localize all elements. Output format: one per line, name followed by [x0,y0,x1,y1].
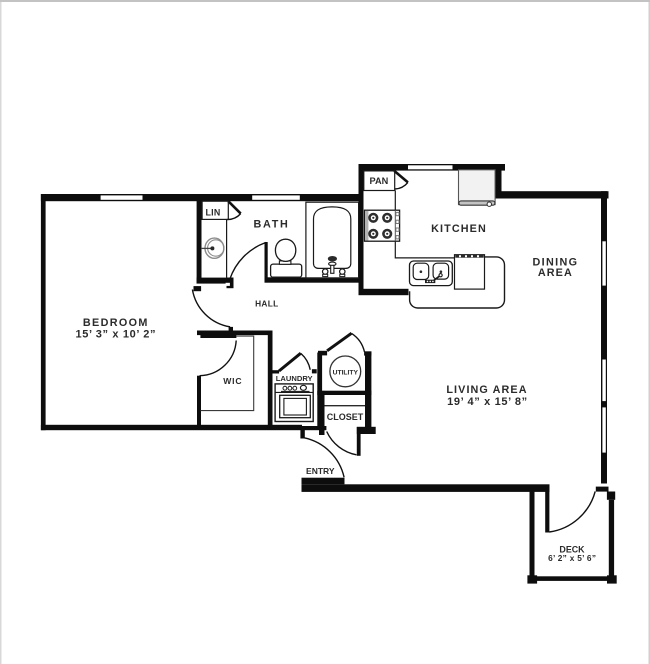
svg-text:BATH: BATH [254,219,290,231]
svg-text:AREA: AREA [538,267,573,279]
svg-text:LAUNDRY: LAUNDRY [276,374,313,383]
svg-text:UTILITY: UTILITY [333,369,359,376]
svg-text:6’ 2” x 5’ 6”: 6’ 2” x 5’ 6” [548,553,596,563]
svg-text:LIN: LIN [206,207,221,217]
svg-text:KITCHEN: KITCHEN [431,223,487,235]
svg-text:PAN: PAN [370,176,389,186]
svg-text:BEDROOM: BEDROOM [83,317,149,329]
svg-text:ENTRY: ENTRY [306,466,335,476]
svg-text:19’ 4” x 15’ 8”: 19’ 4” x 15’ 8” [447,396,528,408]
svg-text:WIC: WIC [223,376,242,386]
svg-text:15’ 3” x 10’ 2”: 15’ 3” x 10’ 2” [75,329,156,341]
svg-text:LIVING AREA: LIVING AREA [446,384,527,396]
svg-text:HALL: HALL [255,299,278,309]
svg-text:CLOSET: CLOSET [327,412,364,422]
